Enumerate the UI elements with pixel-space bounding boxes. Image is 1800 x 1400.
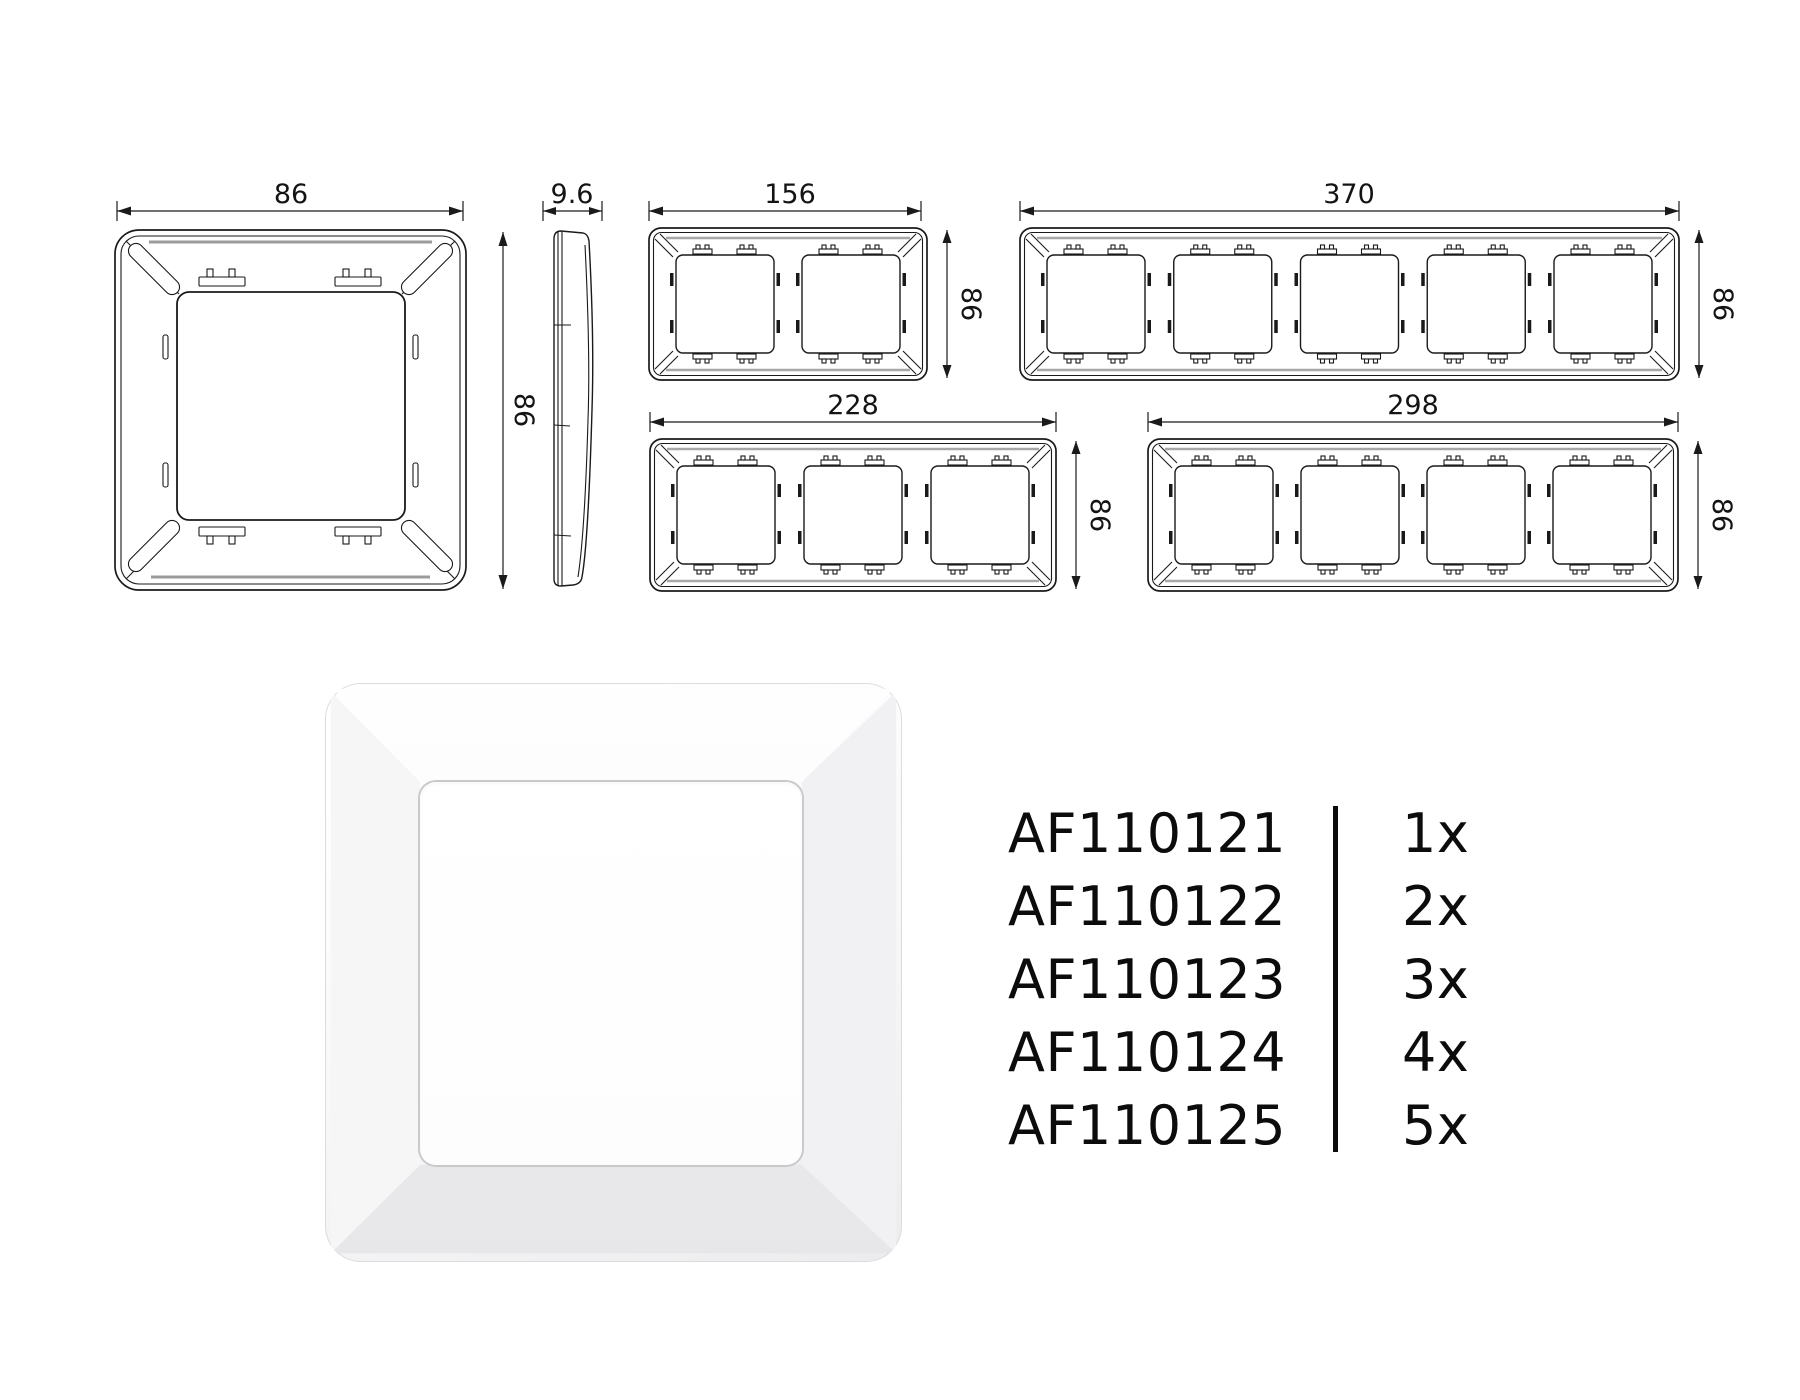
dim-thickness-9-6: 9.6	[543, 179, 602, 221]
dim-label: 370	[1323, 179, 1375, 210]
side-profile-drawing: 9.6	[540, 165, 626, 600]
parts-list: AF110121 1x AF110122 2x AF110123 3x AF11…	[1008, 797, 1628, 1162]
part-number: AF110124	[1008, 1016, 1286, 1089]
part-number: AF110121	[1008, 797, 1286, 870]
dim-label: 298	[1387, 390, 1439, 421]
frame-2gang-drawing: 156 86	[635, 165, 995, 397]
dim-height-86: 86	[499, 232, 540, 589]
list-divider-line	[1333, 806, 1338, 1152]
single-frame-drawing: 86	[95, 165, 545, 600]
parts-row: AF110124 4x	[1008, 1016, 1628, 1089]
dim-height-86: 86	[1694, 441, 1738, 589]
spec-sheet: 86	[0, 0, 1800, 1400]
photo-center-opening	[420, 782, 802, 1165]
dim-label: 86	[1707, 287, 1738, 321]
dim-label: 86	[955, 287, 986, 321]
dim-label: 228	[827, 390, 879, 421]
parts-row: AF110122 2x	[1008, 870, 1628, 943]
gang-count: 5x	[1402, 1089, 1469, 1162]
gang-count: 1x	[1402, 797, 1469, 870]
part-number: AF110123	[1008, 943, 1286, 1016]
dim-width-86: 86	[117, 179, 463, 221]
parts-row: AF110125 5x	[1008, 1089, 1628, 1162]
dim-width-228: 228	[650, 390, 1056, 432]
dim-width-156: 156	[649, 179, 921, 221]
dim-height-86: 86	[1072, 441, 1116, 589]
dim-width-370: 370	[1020, 179, 1679, 221]
frame-5gang-drawing: 370 86	[1005, 165, 1750, 397]
dim-label: 86	[274, 179, 308, 210]
parts-row: AF110121 1x	[1008, 797, 1628, 870]
dim-height-86: 86	[1695, 230, 1739, 378]
gang-count: 2x	[1402, 870, 1469, 943]
frame-3gang-drawing: 228 86	[635, 375, 1120, 607]
product-photo	[325, 683, 902, 1262]
dim-label: 9.6	[551, 179, 594, 210]
dim-label: 86	[508, 393, 539, 427]
frame-4gang-drawing: 298 86	[1130, 375, 1750, 607]
parts-row: AF110123 3x	[1008, 943, 1628, 1016]
part-number: AF110125	[1008, 1089, 1286, 1162]
dim-width-298: 298	[1148, 390, 1678, 432]
gang-count: 3x	[1402, 943, 1469, 1016]
part-number: AF110122	[1008, 870, 1286, 943]
gang-count: 4x	[1402, 1016, 1469, 1089]
dim-label: 156	[764, 179, 816, 210]
dim-label: 86	[1084, 498, 1115, 532]
dim-height-86: 86	[943, 230, 987, 378]
dim-label: 86	[1706, 498, 1737, 532]
